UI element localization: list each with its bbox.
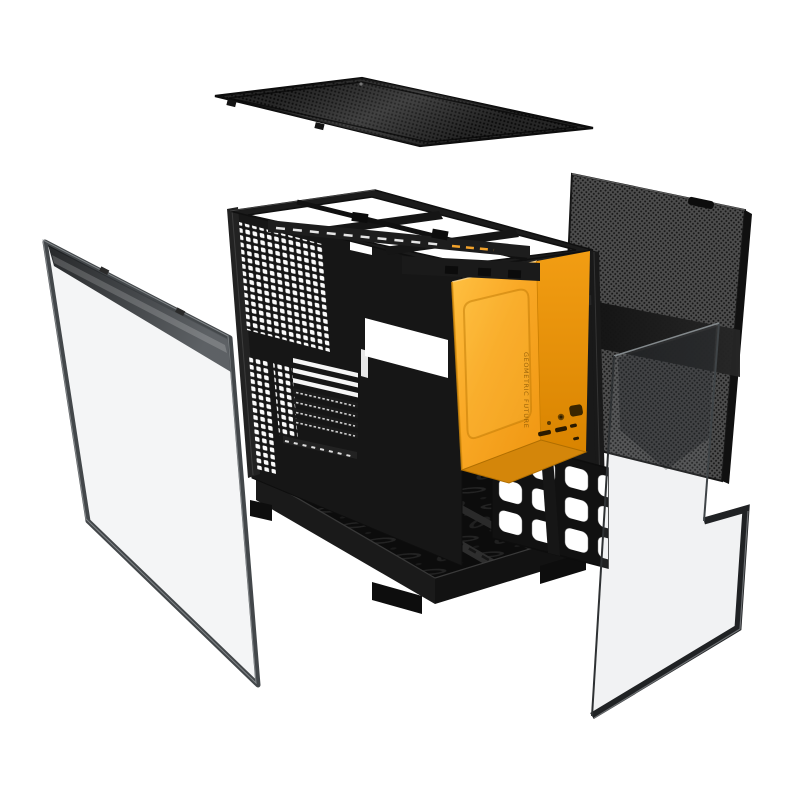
exploded-pc-case-illustration: GEOMETRIC FUTURE — [0, 0, 800, 800]
top-mesh-panel — [215, 78, 593, 146]
front-panel-emboss — [464, 290, 531, 438]
rail-clip-3 — [508, 270, 521, 279]
roof-ridge-highlight — [230, 190, 375, 211]
rail-clip-1 — [445, 266, 458, 275]
product-photo: GEOMETRIC FUTURE — [0, 0, 800, 800]
top-mesh-screw — [359, 82, 362, 85]
reset-pinhole — [547, 421, 551, 425]
led-button-center — [560, 416, 563, 419]
wall-slot-side — [361, 349, 368, 378]
roof-bracket-1 — [351, 212, 368, 223]
brand-logo-text: GEOMETRIC FUTURE — [522, 352, 530, 428]
left-glass-panel — [43, 240, 258, 685]
rail-clip-2 — [478, 268, 491, 277]
front-panel-side-face — [537, 251, 590, 452]
